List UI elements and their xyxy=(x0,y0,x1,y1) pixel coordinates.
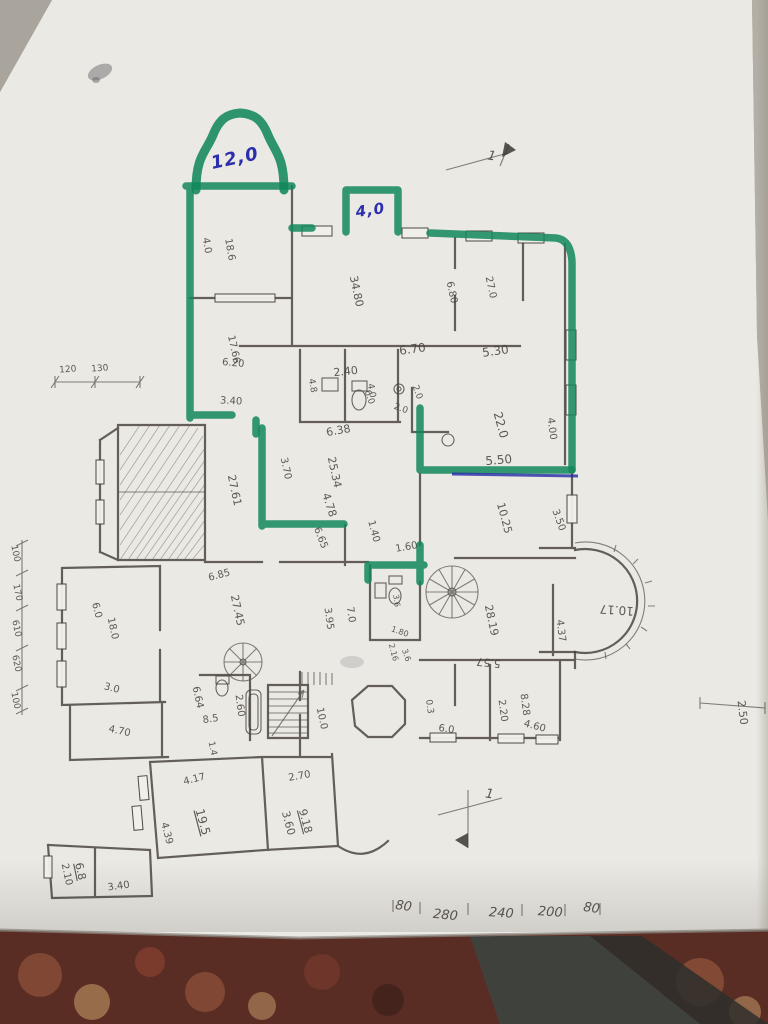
dimension-label: 80 xyxy=(394,898,412,915)
floorplan-svg: 12,04,04.018.634.806.8027.017.666.206.70… xyxy=(0,0,768,1024)
blue-pen-line xyxy=(452,474,578,476)
dimension-label: 6.0 xyxy=(438,723,455,736)
photo-of-floor-plan: 12,04,04.018.634.806.8027.017.666.206.70… xyxy=(0,0,768,1024)
dimension-label: 0.3 xyxy=(423,699,435,715)
dimension-label: 6.20 xyxy=(222,357,245,370)
spiral-staircase-small xyxy=(224,643,262,681)
dimension-label: 120 xyxy=(59,364,77,375)
dimension-label: 7.0 xyxy=(344,606,357,623)
dimension-label: 10.17 xyxy=(599,602,634,618)
spiral-staircase-large xyxy=(426,566,478,618)
dimension-label: 3.6 xyxy=(391,594,402,608)
dimension-label: 280 xyxy=(432,907,458,925)
dimension-label: 130 xyxy=(91,363,109,374)
dimension-label: 2.40 xyxy=(333,364,359,379)
dimension-label: 80 xyxy=(582,900,600,917)
paper-sheet xyxy=(0,0,768,938)
dimension-label: 3.40 xyxy=(220,395,243,407)
dimension-label: 5.50 xyxy=(485,452,513,468)
dimension-label: 8.5 xyxy=(202,713,219,726)
dimension-label: 5.57 xyxy=(476,655,502,670)
dimension-label: 200 xyxy=(537,904,563,921)
dimension-label: 240 xyxy=(488,905,514,922)
